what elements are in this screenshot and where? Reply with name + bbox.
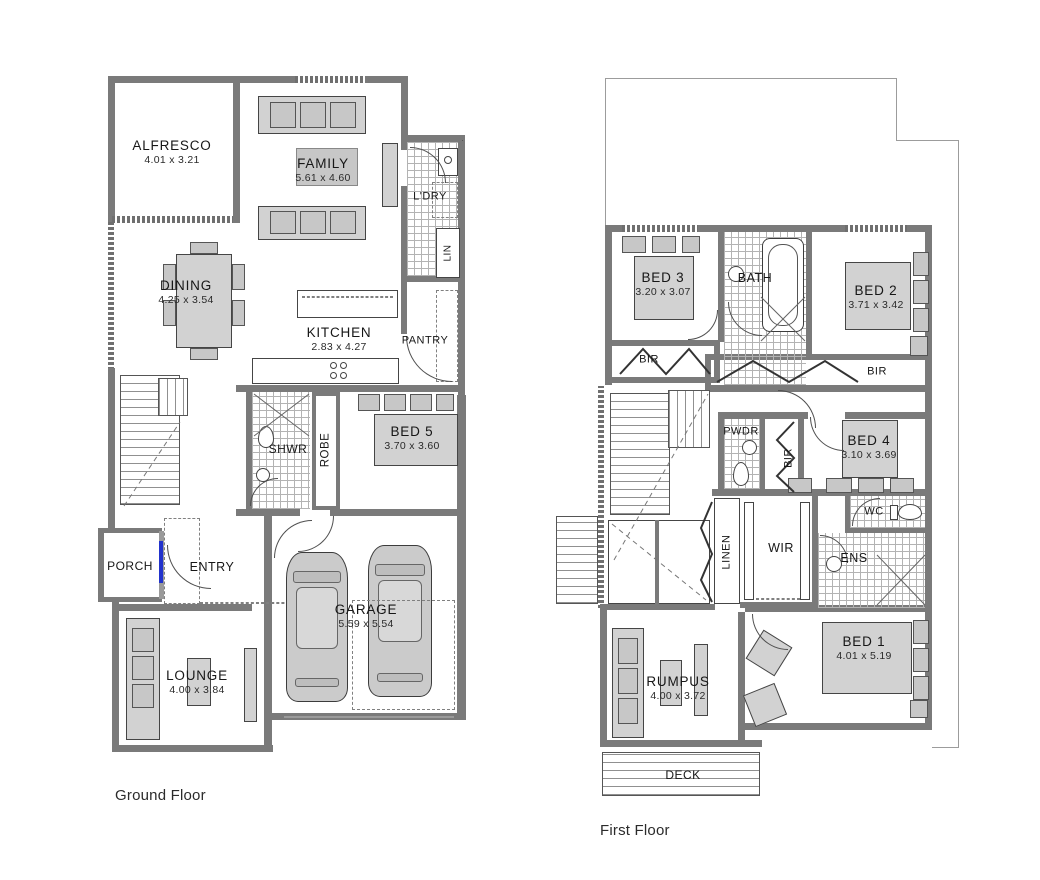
- armchair: [743, 683, 787, 727]
- wall: [108, 76, 115, 223]
- toilet: [898, 504, 922, 520]
- wall: [330, 509, 466, 516]
- bedside-table: [910, 336, 928, 356]
- wall: [612, 377, 720, 383]
- sofa-cushion: [270, 102, 296, 128]
- pillow: [682, 236, 700, 253]
- sofa-cushion: [132, 656, 154, 680]
- room-label-pantry: PANTRY: [402, 335, 449, 348]
- wall: [401, 135, 465, 142]
- door-arc: [274, 520, 312, 558]
- cooktop-burner: [330, 372, 337, 379]
- wall: [600, 604, 715, 610]
- floor-break-line: [756, 598, 800, 600]
- pillow: [913, 308, 929, 332]
- window-wall: [108, 222, 114, 370]
- wall: [745, 723, 932, 730]
- wall: [98, 528, 104, 602]
- room-label-bir-bed3: BIR: [639, 354, 659, 367]
- room-label-garage: GARAGE 5.59 x 5.54: [335, 602, 398, 630]
- sofa-cushion: [132, 684, 154, 708]
- roof-outline: [932, 747, 959, 748]
- roof-outline: [958, 140, 959, 748]
- stair-break-line: [122, 420, 182, 508]
- toilet: [733, 462, 749, 486]
- room-label-entry: ENTRY: [190, 560, 235, 574]
- room-label-pwdr: PWDR: [723, 426, 759, 439]
- shower-icon: [253, 393, 310, 437]
- sofa-cushion: [618, 698, 638, 724]
- sofa-cushion: [330, 211, 356, 234]
- tv-unit: [244, 648, 257, 722]
- sofa-cushion: [300, 211, 326, 234]
- room-label-wir: WIR: [768, 541, 794, 555]
- roof-outline: [896, 140, 958, 141]
- room-label-rumpus: RUMPUS 4.00 x 3.72: [646, 674, 709, 702]
- shower-icon: [876, 554, 926, 606]
- pillow: [913, 280, 929, 304]
- window-wall: [112, 216, 241, 223]
- car-roof: [296, 587, 338, 649]
- wall: [760, 415, 765, 496]
- cooktop-burner: [340, 372, 347, 379]
- kitchen-bench: [252, 358, 399, 384]
- room-label-robe: ROBE: [319, 433, 332, 468]
- door-arc: [462, 140, 463, 141]
- car-windshield: [293, 571, 341, 583]
- car-rear-window: [295, 678, 339, 687]
- basin: [444, 156, 452, 164]
- pillow: [913, 676, 929, 700]
- wall: [738, 612, 745, 742]
- wall: [401, 282, 407, 334]
- wall: [705, 385, 932, 392]
- sofa-cushion: [330, 102, 356, 128]
- sofa-cushion: [618, 638, 638, 664]
- window-wall: [598, 386, 604, 608]
- wall: [98, 597, 162, 602]
- kitchen-island: [297, 290, 398, 318]
- room-label-bir-bed2: BIR: [867, 366, 887, 379]
- garage-door: [284, 716, 454, 718]
- wall: [112, 745, 273, 752]
- room-label-shwr: SHWR: [269, 443, 308, 457]
- room-label-bath: BATH: [738, 271, 772, 285]
- shower-icon: [760, 296, 806, 342]
- wardrobe-rail: [800, 502, 810, 600]
- room-label-bed2: BED 2 3.71 x 3.42: [848, 283, 903, 311]
- basin: [742, 440, 757, 455]
- chair: [232, 264, 245, 290]
- wall: [264, 516, 272, 752]
- pillow: [358, 394, 380, 411]
- window-wall: [845, 225, 907, 232]
- pillow: [384, 394, 406, 411]
- pillow: [890, 478, 914, 493]
- wall: [845, 412, 932, 419]
- door-arc: [688, 310, 718, 340]
- window-wall: [295, 76, 365, 83]
- hanging-rail: [715, 358, 860, 384]
- wall: [112, 604, 252, 611]
- chair: [232, 300, 245, 326]
- wall: [108, 368, 115, 531]
- pillow: [858, 478, 884, 493]
- window-wall: [622, 225, 698, 232]
- bedside-table: [910, 700, 928, 718]
- pillow: [913, 648, 929, 672]
- floor-plan-canvas: ALFRESCO 4.01 x 3.21 FAMILY 5.61 x 4.60 …: [0, 0, 1040, 880]
- stair-landing: [158, 378, 188, 416]
- room-label-dining: DINING 4.25 x 3.54: [158, 278, 213, 306]
- ground-floor-caption: Ground Floor: [115, 787, 206, 804]
- room-label-bed1: BED 1 4.01 x 5.19: [836, 634, 891, 662]
- room-label-wc: WC: [864, 506, 883, 519]
- hanging-rail: [698, 500, 714, 604]
- front-door-highlight: [159, 541, 163, 583]
- wall: [233, 76, 240, 223]
- roof-outline: [896, 78, 897, 141]
- sofa-cushion: [618, 668, 638, 694]
- first-floor-caption: First Floor: [600, 822, 670, 839]
- wardrobe-rail: [744, 502, 754, 600]
- door-arc: [810, 417, 844, 451]
- cooktop-burner: [340, 362, 347, 369]
- room-label-bir-bed4: BIR: [783, 448, 796, 468]
- pillow: [913, 252, 929, 276]
- sofa-cushion: [270, 211, 296, 234]
- cooktop-burner: [330, 362, 337, 369]
- wall: [112, 600, 119, 752]
- car-windshield: [375, 564, 425, 576]
- tv-unit: [382, 143, 398, 207]
- pillow: [652, 236, 676, 253]
- wall: [98, 528, 162, 533]
- room-label-alfresco: ALFRESCO 4.01 x 3.21: [132, 138, 211, 166]
- room-label-lounge: LOUNGE 4.00 x 3.84: [166, 668, 228, 696]
- pillow: [913, 620, 929, 644]
- room-label-bed4: BED 4 3.10 x 3.69: [841, 433, 896, 461]
- room-label-kitchen: KITCHEN 2.83 x 4.27: [307, 325, 372, 353]
- roof-outline: [605, 78, 606, 225]
- roof-outline: [605, 78, 897, 79]
- room-label-ldry: L'DRY: [413, 191, 447, 204]
- room-label-deck: DECK: [665, 769, 700, 783]
- wall: [236, 385, 465, 392]
- wall: [401, 76, 408, 142]
- room-label-ens: ENS: [840, 551, 867, 565]
- bench-line: [302, 296, 393, 298]
- toilet-tank: [890, 505, 898, 520]
- sofa-cushion: [132, 628, 154, 652]
- sofa-cushion: [300, 102, 326, 128]
- room-label-porch: PORCH: [107, 560, 153, 574]
- room-label-linen: LINEN: [721, 535, 734, 570]
- wall: [457, 395, 466, 720]
- hanging-rail: [618, 344, 712, 376]
- room-label-bed3: BED 3 3.20 x 3.07: [635, 270, 690, 298]
- pillow: [826, 478, 852, 493]
- chair: [190, 348, 218, 360]
- void-line: [610, 522, 708, 602]
- pillow: [622, 236, 646, 253]
- window-seat: [556, 516, 598, 604]
- wall: [605, 225, 612, 385]
- wall: [600, 610, 607, 747]
- pillow: [436, 394, 454, 411]
- chair: [190, 242, 218, 254]
- room-label-bed5: BED 5 3.70 x 3.60: [384, 424, 439, 452]
- pillow: [410, 394, 432, 411]
- room-label-family: FAMILY 5.61 x 4.60: [295, 156, 350, 184]
- wall: [806, 232, 812, 354]
- room-label-lin: LIN: [442, 244, 454, 261]
